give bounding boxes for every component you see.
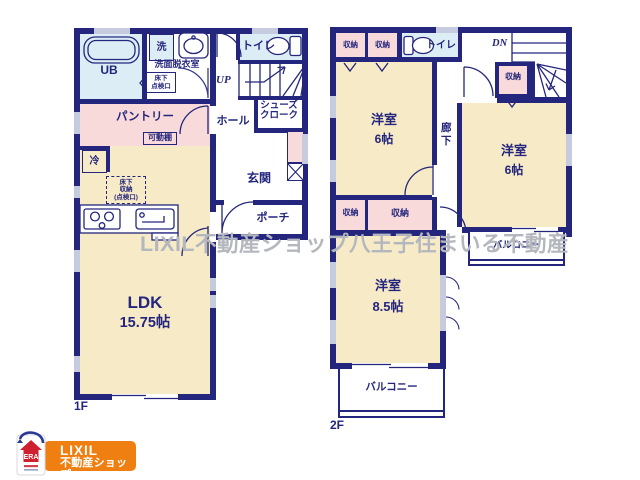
shoes-closet-label: シューズ クローク	[252, 101, 306, 122]
closet-door-marks	[344, 63, 518, 107]
floorplan-image: UB 洗 洗面脱衣室 床下 点検口 トイレ UP ホール シューズ クローク パ…	[0, 0, 640, 480]
underfloor-storage-box: 床下 収納 (点検口)	[106, 176, 146, 204]
floor1-label: 1F	[74, 400, 88, 413]
room3-label: 洋室	[336, 279, 440, 293]
entrance-label: 玄関	[216, 172, 302, 185]
emblem-small-print-1	[24, 465, 38, 467]
era-text: ERA	[24, 454, 39, 461]
fridge-label: 冷	[90, 156, 100, 167]
toilet-2f-label: トイレ	[424, 40, 458, 51]
stairs-up-1f	[239, 62, 306, 96]
closet-a-label: 収納	[336, 41, 365, 49]
casement-window-arcs	[446, 277, 459, 330]
balcony-bottom-label: バルコニー	[338, 382, 445, 394]
washer-box: 洗	[149, 34, 174, 61]
watermark-text: LIXIL不動産ショップ八王子住まいる不動産	[140, 227, 569, 258]
fridge-box: 冷	[82, 150, 107, 173]
underfloor-line2: 収納	[120, 186, 133, 193]
emblem-small-print-2	[24, 469, 38, 471]
room2-size-label: 6帖	[462, 164, 566, 177]
washer-label: 洗	[157, 42, 167, 53]
floor-hatch-line1: 床下	[155, 75, 168, 82]
ldk-label: LDK	[80, 294, 210, 313]
stairs-dn-2f	[512, 33, 566, 97]
underfloor-line3: (点検口)	[114, 194, 138, 201]
toilet-1f-label: トイレ	[242, 40, 275, 52]
washroom-label: 洗面脱衣室	[141, 60, 213, 70]
room3-size-label: 8.5帖	[336, 300, 440, 314]
closet-c-label: 収納	[497, 73, 529, 82]
stairs-dn-label: DN	[492, 38, 507, 50]
room2-label: 洋室	[462, 144, 566, 158]
pantry-label: パントリー	[80, 111, 210, 124]
era-emblem: ERA	[14, 427, 48, 479]
closet-e-label: 収納	[368, 209, 432, 219]
hall-label: ホール	[210, 115, 256, 127]
bath-label: UB	[76, 64, 142, 77]
closet-d-label: 収納	[336, 209, 365, 218]
shelf-label: 可動棚	[148, 134, 172, 143]
company-logo: LIXIL 不動産ショップ ERA	[14, 427, 184, 479]
floor-hatch-box: 床下 点検口	[146, 72, 176, 93]
corridor-label: 廊下	[441, 122, 454, 148]
room1-label: 洋室	[336, 113, 432, 127]
sink-icon	[179, 33, 208, 58]
floor-hatch-line2: 点検口	[151, 83, 171, 90]
logo-orange-plate: LIXIL 不動産ショップ	[44, 441, 136, 471]
closet-b-label: 収納	[368, 41, 397, 49]
room1-size-label: 6帖	[336, 133, 432, 146]
shoes-line2: クローク	[252, 111, 306, 121]
logo-sub-text: 不動産ショップ	[60, 458, 136, 480]
shelf-box: 可動棚	[143, 132, 177, 145]
porch-label: ポーチ	[238, 212, 308, 224]
stairs-up-label: UP	[216, 74, 231, 86]
ldk-size-label: 15.75帖	[80, 316, 210, 332]
floor2-label: 2F	[330, 419, 344, 432]
